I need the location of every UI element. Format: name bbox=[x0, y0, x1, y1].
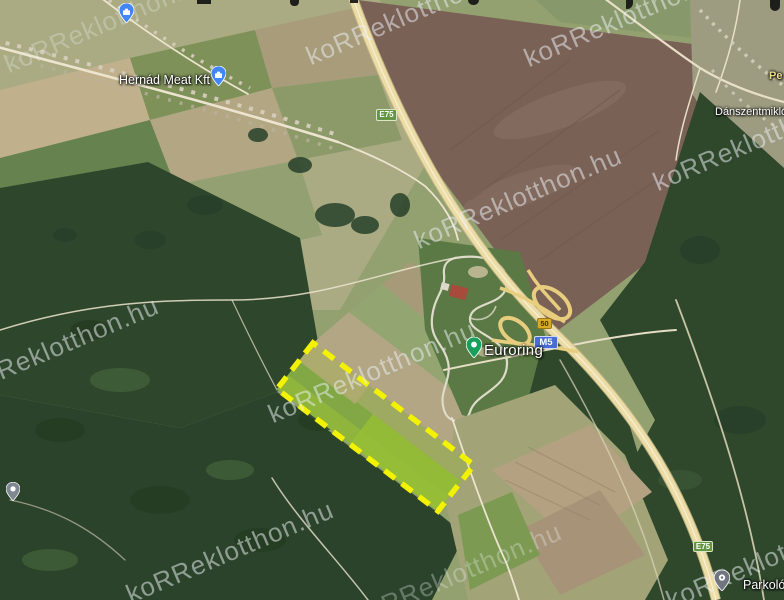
text-fragment bbox=[197, 0, 211, 4]
e75-road-shield-south: E75 bbox=[693, 541, 713, 552]
euroring-green-marker-icon bbox=[466, 337, 482, 358]
satellite-imagery bbox=[0, 0, 784, 600]
e75-road-shield: E75 bbox=[376, 109, 397, 121]
business-poi-marker-icon bbox=[211, 66, 226, 86]
label-partial-locality: Pe bbox=[769, 70, 782, 82]
text-fragment bbox=[350, 0, 358, 3]
label-hernad-meat-kft: Hernád Meat Kft bbox=[119, 73, 210, 87]
gray-poi-marker-icon bbox=[6, 482, 20, 501]
label-euroring: Euroring bbox=[484, 342, 543, 359]
route-50-shield: 50 bbox=[537, 318, 552, 329]
blue-poi-marker-icon bbox=[119, 3, 134, 23]
text-fragment bbox=[770, 0, 780, 11]
satellite-map-screenshot: koRReklotthon.hu koRReklotthon.hu koRRek… bbox=[0, 0, 784, 600]
parking-poi-marker-icon bbox=[714, 570, 730, 591]
label-danszentmiklos: Dánszentmiklós bbox=[715, 106, 784, 118]
label-parkolo: Parkoló bbox=[743, 578, 784, 592]
